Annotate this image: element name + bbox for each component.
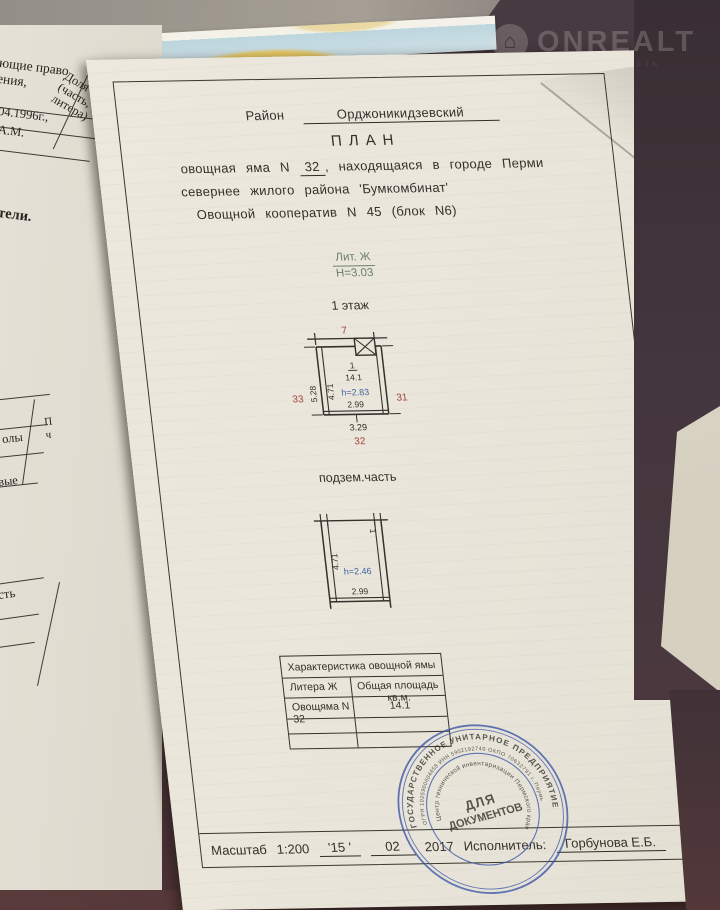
table-line <box>0 614 39 622</box>
floor-label: 1 этаж <box>331 298 370 313</box>
date-day: '15 ' <box>318 839 361 857</box>
photo-of-document: ющие право ения, Доля (часть, литера) 04… <box>0 0 720 910</box>
district-label: Район <box>245 108 285 124</box>
header-line: севернее жилого района 'Бумкомбинат' <box>125 177 617 201</box>
scale-value: 1:200 <box>276 841 310 857</box>
liter-label: Лит. Ж <box>331 250 376 267</box>
table-line <box>0 452 44 459</box>
envelope-paper <box>634 0 720 700</box>
table-cell <box>287 718 357 733</box>
dimension-label: 2.99 <box>347 399 365 409</box>
table-header-cell: Литера Ж <box>283 677 353 697</box>
table-line <box>0 642 35 650</box>
table-title: Характеристика овощной ямы <box>280 654 442 679</box>
watermark-tagline: недвижимость <box>556 58 661 68</box>
underground-plan-svg: 1 4.71 h=2.46 2.99 <box>284 503 427 617</box>
table-line <box>0 394 50 402</box>
dimension-label: 5.28 <box>307 385 319 402</box>
underlay-fragment: А.М. <box>0 122 25 139</box>
table-line <box>0 577 44 586</box>
page-title: ПЛАН <box>120 128 612 154</box>
neighbor-number: 7 <box>341 326 348 337</box>
floor-plan-svg: 7 1 14.1 h=2.83 2.99 <box>278 321 463 452</box>
brand-text: ONREALT <box>537 26 696 59</box>
height-label: h=2.83 <box>341 387 370 397</box>
building-height: Н=3.03 <box>309 266 401 282</box>
header-line: Овощной кооператив N 45 (блок N6) <box>128 200 620 224</box>
house-icon: ⌂ <box>492 24 528 60</box>
document-frame: РайонОрджоникидзевский ПЛАН овощная яма … <box>112 73 694 868</box>
underground-label: подзем.часть <box>318 470 397 485</box>
liter-block: Лит. Ж Н=3.03 <box>307 250 400 282</box>
table-line <box>0 149 90 162</box>
header-line: овощная яма N 32, находящаяся в городе П… <box>123 154 615 180</box>
neighbor-number: 31 <box>396 392 409 403</box>
table-row: Овощяма N 32 14.1 <box>285 696 447 720</box>
table-line <box>37 582 60 686</box>
table-cell <box>289 733 359 748</box>
table-line <box>22 399 35 484</box>
table-header-cell: Общая площадь кв.м. <box>351 676 445 697</box>
pit-number: 32 <box>299 159 326 176</box>
header-text: овощная яма N <box>180 159 291 176</box>
neighbor-number: 33 <box>292 394 305 405</box>
scale-label: Масштаб <box>210 842 267 858</box>
sofa-right <box>634 0 720 700</box>
neighbor-number: 32 <box>354 436 367 447</box>
table-cell: 14.1 <box>353 696 447 718</box>
table-cell: Овощяма N 32 <box>285 697 355 718</box>
dimension-label: 2.99 <box>351 586 369 596</box>
district-value: Орджоникидзевский <box>301 104 499 124</box>
underlay-fragment: тели. <box>0 205 33 226</box>
room-number: 1 <box>368 529 379 534</box>
district-line: РайонОрджоникидзевский <box>117 102 609 128</box>
header-text: , находящаяся в городе Перми <box>324 155 545 174</box>
underlay-fragment: олы <box>1 430 23 446</box>
room-number: 1 <box>349 360 355 370</box>
height-label: h=2.46 <box>343 566 372 576</box>
onrealt-watermark: ⌂ ONREALT <box>492 24 696 60</box>
main-sheet: РайонОрджоникидзевский ПЛАН овощная яма … <box>86 50 720 910</box>
underlay-fragment: П ч <box>44 416 55 442</box>
dimension-label: 3.29 <box>349 422 368 432</box>
underlay-fragment: сть <box>0 586 16 603</box>
table-line <box>0 424 48 431</box>
room-area-label: 14.1 <box>345 372 363 382</box>
dimension-label: 4.71 <box>329 553 341 570</box>
dimension-label: 4.71 <box>325 383 337 400</box>
